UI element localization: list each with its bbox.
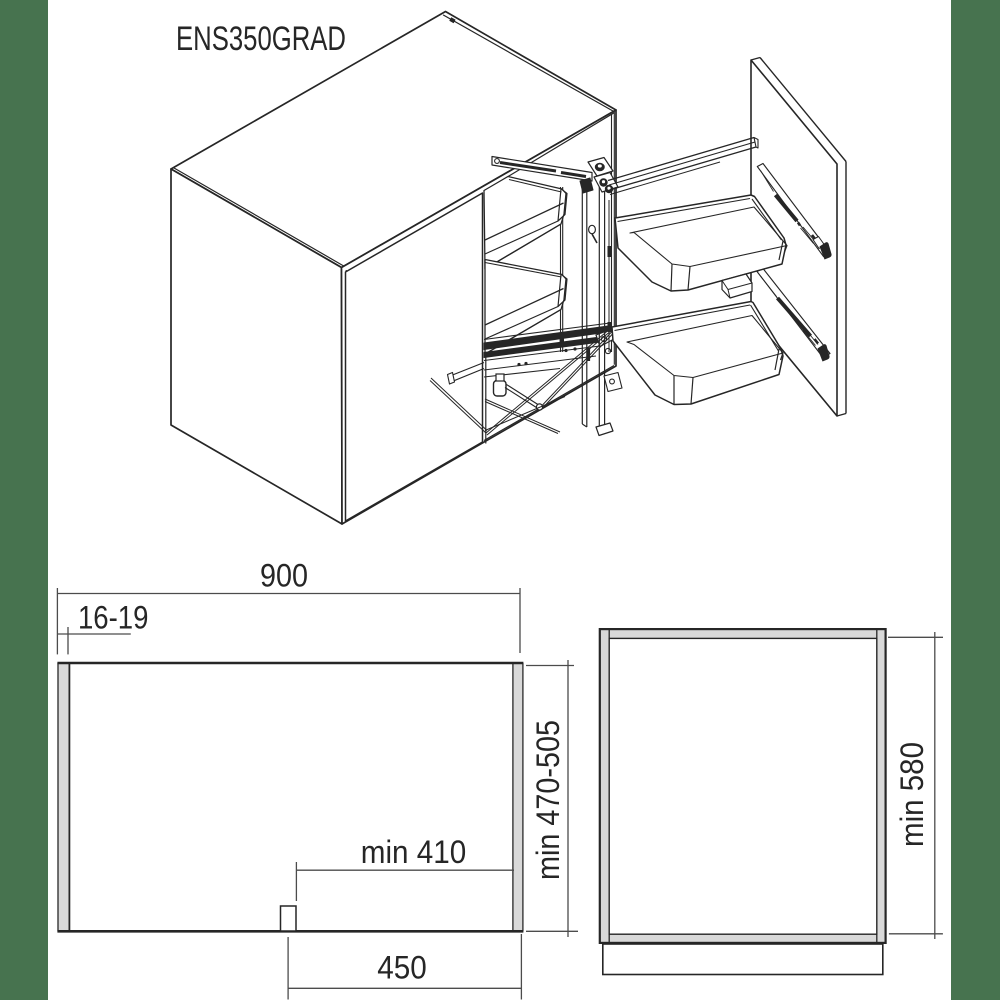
svg-text:min 580: min 580 xyxy=(894,742,930,847)
svg-text:450: 450 xyxy=(377,949,427,985)
svg-text:min 410: min 410 xyxy=(361,834,467,870)
svg-text:16-19: 16-19 xyxy=(78,600,149,636)
svg-text:min 470-505: min 470-505 xyxy=(530,720,566,880)
svg-text:900: 900 xyxy=(260,558,308,594)
svg-text:ENS350GRAD: ENS350GRAD xyxy=(176,20,346,58)
